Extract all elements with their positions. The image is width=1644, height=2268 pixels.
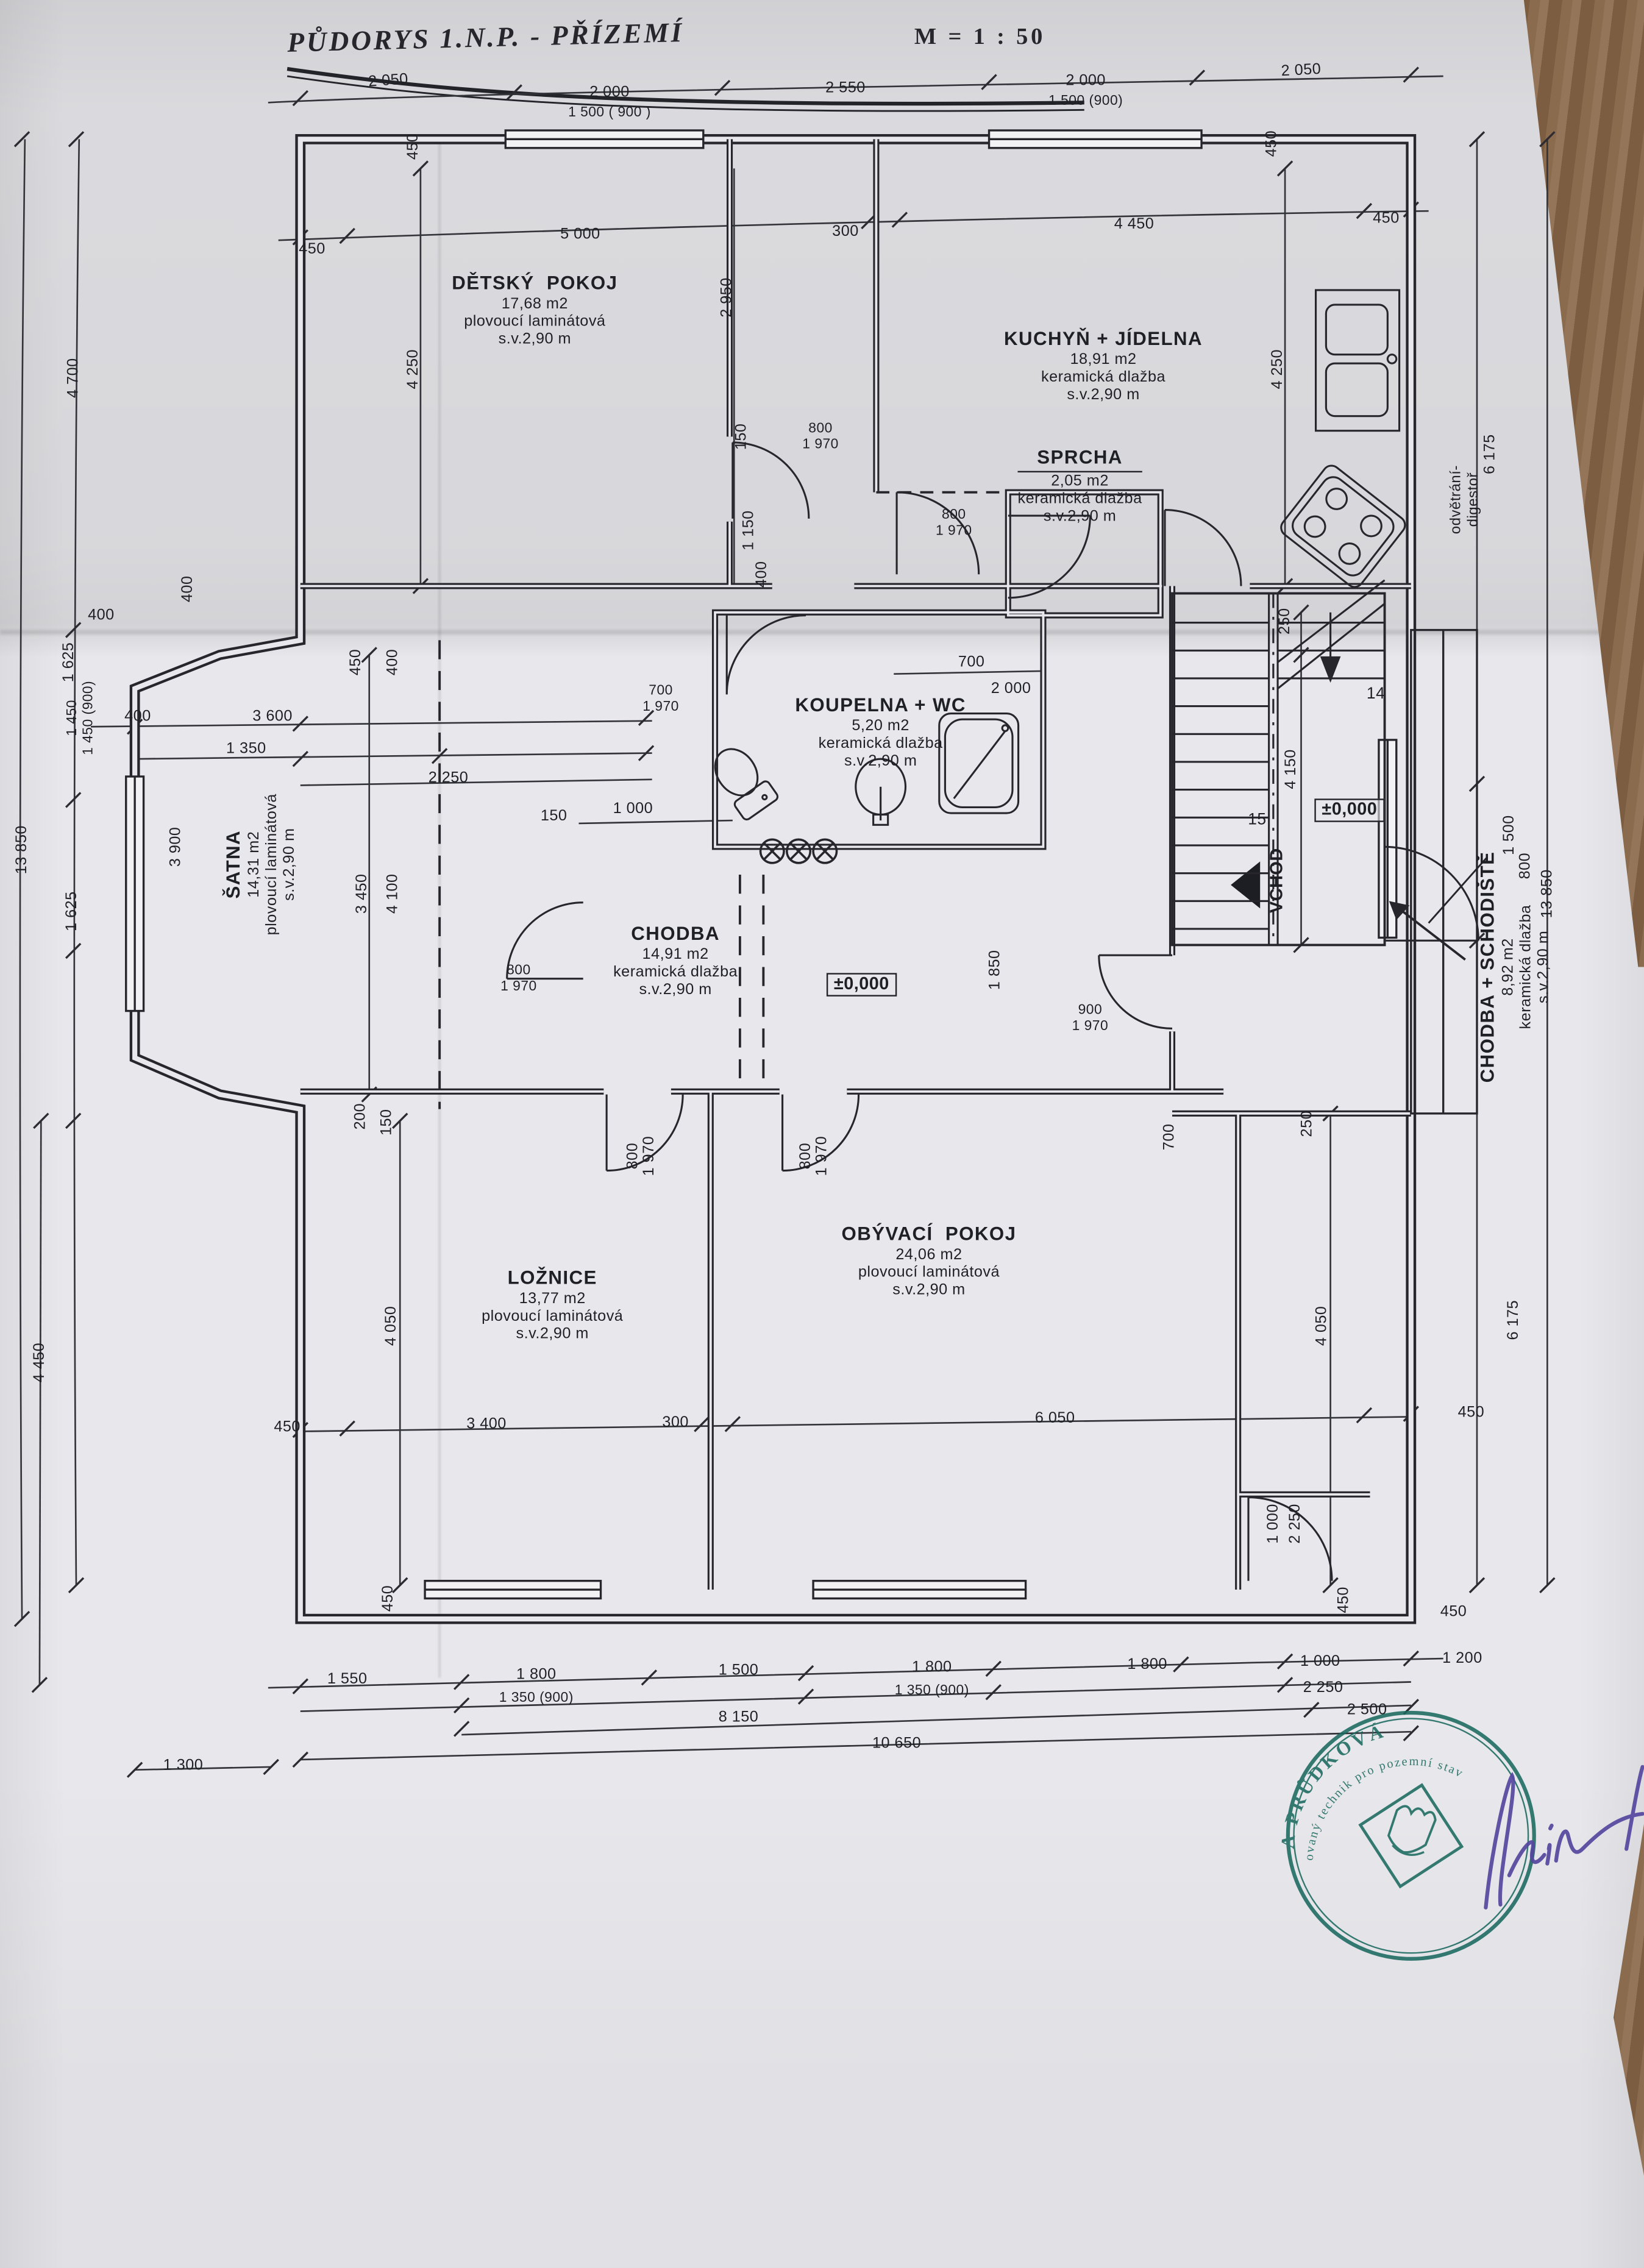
dimension-label: 700 (958, 653, 985, 671)
dimension-label: 10 650 (872, 1735, 921, 1752)
dimension-label: 450 (347, 649, 365, 676)
dimension-label: 200 (352, 1103, 369, 1130)
dimension-label: 300 (662, 1414, 689, 1432)
dimension-label: 1 500 (719, 1662, 759, 1679)
dimension-label: 250 (1276, 608, 1294, 635)
dimension-label: 2 050 (1281, 60, 1322, 80)
dimension-label: 2 000 (589, 84, 630, 101)
dimension-label: 450 (299, 240, 326, 258)
dimension-label: 700 1 970 (642, 684, 679, 717)
room-height: s.v.2,90 m (452, 330, 617, 348)
room-area: 24,06 m2 (841, 1246, 1016, 1264)
dimension-label: 6 175 (1505, 1300, 1523, 1340)
dimension-label: 1 000 (1264, 1504, 1282, 1544)
dimension-label: 4 250 (404, 349, 422, 389)
room-floor: keramická dlažba (1004, 368, 1203, 386)
entrance-landing (1411, 630, 1477, 1114)
room-area: 17,68 m2 (452, 295, 617, 313)
annotation-odv-tr-n-digesto-: odvětrání- digestoř (1448, 465, 1482, 534)
room-area: 2,05 m2 (1018, 472, 1142, 490)
dimension-label: 800 1 970 (936, 508, 972, 541)
dimension-label: 250 (1298, 1111, 1316, 1137)
dimension-label: 450 (1458, 1404, 1485, 1421)
dimension-label: 450 (1373, 210, 1400, 227)
plan-linework: A PRŮDKOVÁ ovaný technik pro pozemní sta… (0, 0, 1644, 2268)
room-area: 5,20 m2 (795, 717, 966, 734)
dimension-label: 1 850 (986, 950, 1004, 990)
dimension-label: 2 000 (991, 680, 1031, 697)
dimension-label: 6 175 (1481, 434, 1499, 474)
dimension-label: 450 (274, 1418, 301, 1436)
dimension-label: 4 100 (384, 873, 402, 914)
dimension-label: 1 970 (640, 1136, 658, 1176)
dimension-label: 2 250 (1286, 1504, 1304, 1544)
room-label-koupelna-wc: KOUPELNA + WC5,20 m2keramická dlažbas.v.… (795, 695, 966, 770)
dimension-label: 1 500 (900) (1048, 94, 1123, 110)
dimension-label: 800 1 970 (500, 964, 537, 997)
dimension-label: 3 900 (167, 827, 185, 867)
dimension-label: 800 (797, 1143, 815, 1170)
dimension-label: 150 (378, 1109, 396, 1136)
dimension-label: 2 050 (368, 70, 408, 90)
dimension-label: 400 (88, 606, 115, 624)
dimension-label: 450 (379, 1585, 397, 1612)
dimension-label: 1 500 ( 900 ) (568, 106, 651, 122)
dimension-label: 800 (624, 1143, 642, 1170)
dimension-label: 2 250 (429, 769, 469, 787)
room-name: DĚTSKÝ POKOJ (452, 273, 617, 295)
room-area: 14,91 m2 (613, 945, 738, 963)
dimension-label: 2 250 (1303, 1679, 1343, 1697)
dimension-label: 1 625 (63, 891, 80, 931)
dimension-label: 6 050 (1035, 1409, 1075, 1427)
dimension-label: 1 800 (516, 1666, 557, 1683)
signature (1486, 1767, 1642, 1908)
dimension-label: 3 450 (353, 873, 371, 914)
dimension-label: 300 (832, 222, 859, 240)
room-height: s.v.2,90 m (795, 752, 966, 770)
dimension-label: 1 000 (1300, 1652, 1340, 1670)
dimension-label: 13 850 (13, 825, 31, 874)
dimension-label: 800 (1517, 853, 1534, 880)
annotation-14: 14 (1367, 685, 1385, 703)
dimension-label: 2 550 (825, 79, 866, 97)
dimension-label: 1 300 (163, 1757, 204, 1774)
dimension-label: 400 (384, 649, 402, 676)
dimension-label: 450 (1440, 1603, 1467, 1621)
room-area: 8,92 m2 (1500, 851, 1517, 1083)
interior-walls (301, 139, 1411, 1590)
kitchen-sink (1316, 290, 1400, 431)
annotation-vchod: VCHOD (1267, 848, 1287, 913)
dimension-label: 4 700 (65, 358, 82, 398)
room-area: 13,77 m2 (482, 1290, 623, 1307)
dimension-label: 4 450 (30, 1343, 48, 1383)
dimension-label: 5 000 (560, 226, 600, 243)
photographed-floorplan: PŮDORYS 1.N.P. - PŘÍZEMÍ M = 1 : 50 (0, 0, 1644, 2268)
room-floor: plovoucí laminátová (841, 1264, 1016, 1281)
room-name: KOUPELNA + WC (795, 695, 966, 717)
room-label-chodba: CHODBA14,91 m2keramická dlažbas.v.2,90 m (613, 923, 738, 998)
dimension-label: 150 (541, 807, 568, 825)
room-floor: keramická dlažba (613, 963, 738, 981)
room-name: KUCHYŇ + JÍDELNA (1004, 329, 1203, 350)
windows (126, 130, 1397, 1599)
room-floor: plovoucí laminátová (482, 1307, 623, 1325)
dimension-label: 900 1 970 (1072, 1004, 1109, 1036)
dimension-label: 1 625 (60, 642, 77, 683)
dimension-label: 150 (733, 424, 750, 450)
dimension-label: 1 200 (1442, 1650, 1482, 1668)
room-label-d-tsk-pokoj: DĚTSKÝ POKOJ17,68 m2plovoucí laminátovás… (452, 273, 617, 348)
annotation-15: 15 (1248, 811, 1266, 830)
room-area: 18,91 m2 (1004, 350, 1203, 368)
room-height: s.v.2,90 m (482, 1325, 623, 1343)
dimension-label: 3 400 (466, 1415, 507, 1433)
dimension-label: 400 (179, 576, 196, 603)
dimension-label: 2 500 (1347, 1701, 1387, 1719)
room-floor: keramická dlažba (795, 734, 966, 752)
room-label-sprcha: SPRCHA2,05 m2keramická dlažbas.v.2,90 m (1018, 447, 1142, 525)
room-name: CHODBA + SCHODIŠTĚ (1478, 851, 1500, 1083)
dimension-label: 4 050 (1313, 1306, 1331, 1346)
room-height: s.v.2,90 m (1018, 508, 1142, 525)
dimension-label: 450 (1335, 1587, 1353, 1613)
room-label-lo-nice: LOŽNICE13,77 m2plovoucí laminátovás.v.2,… (482, 1268, 623, 1343)
dimension-label: 1 150 (740, 510, 758, 550)
annotation-±0-000: ±0,000 (827, 973, 897, 996)
dimension-label: 8 150 (719, 1708, 759, 1726)
dimension-label: 4 250 (1269, 349, 1287, 389)
dimension-label: 1 970 (813, 1136, 831, 1176)
dimension-label: 450 (404, 133, 422, 160)
room-height: s.v.2,90 m (841, 1281, 1016, 1299)
room-name: SPRCHA (1018, 447, 1142, 472)
room-name: OBÝVACÍ POKOJ (841, 1224, 1016, 1246)
room-name: ŠATNA (223, 794, 245, 935)
room-height: s.v.2,90 m (613, 981, 738, 998)
room-floor: keramická dlažba (1517, 851, 1535, 1083)
dimension-label: 1 550 (327, 1670, 368, 1688)
dimension-label: 1 450 1 450 (900) (66, 681, 98, 755)
room-label-kuchy-j-delna: KUCHYŇ + JÍDELNA18,91 m2keramická dlažba… (1004, 329, 1203, 403)
kitchen-stove (1278, 462, 1409, 590)
dimension-label: 1 800 (912, 1658, 952, 1676)
outer-walls (135, 139, 1411, 1619)
dimension-label: 400 (753, 561, 770, 588)
room-name: LOŽNICE (482, 1268, 623, 1290)
dimension-label: 4 050 (382, 1306, 400, 1346)
room-area: 14,31 m2 (245, 794, 263, 935)
room-label-ob-vac-pokoj: OBÝVACÍ POKOJ24,06 m2plovoucí laminátová… (841, 1224, 1016, 1299)
dimension-label: 2 000 (1066, 72, 1106, 90)
dimension-label: 450 (1263, 130, 1281, 157)
floorplan-sheet: PŮDORYS 1.N.P. - PŘÍZEMÍ M = 1 : 50 (0, 0, 1644, 2268)
dimension-label: 400 (124, 708, 151, 725)
dimension-label: 1 800 (1127, 1655, 1167, 1673)
dimension-label: 1 500 (1500, 815, 1518, 855)
dimension-label: 13 850 (1539, 869, 1556, 918)
dimension-label: 1 350 (900) (895, 1684, 969, 1700)
dimension-label: 4 450 (1114, 215, 1155, 233)
dimension-label: 1 000 (613, 800, 653, 817)
dimension-label: 2 950 (718, 277, 736, 318)
dimension-label: 4 150 (1282, 749, 1300, 789)
room-height: s.v.2,90 m (1004, 386, 1203, 403)
room-height: s.v.2,90 m (280, 794, 298, 935)
dimension-label: 1 350 (226, 740, 266, 758)
room-name: CHODBA (613, 923, 738, 945)
interior-wall-cores (301, 139, 1411, 1590)
dimension-label: 800 1 970 (802, 422, 839, 454)
vent-symbols (761, 839, 837, 862)
dimension-label: 1 350 (900) (499, 1691, 574, 1707)
room-floor: plovoucí laminátová (452, 313, 617, 330)
dimension-label: 700 (1161, 1124, 1178, 1151)
room-floor: plovoucí laminátová (263, 794, 280, 935)
room-label--atna: ŠATNA14,31 m2plovoucí laminátovás.v.2,90… (223, 794, 298, 935)
annotation-±0-000: ±0,000 (1314, 798, 1384, 822)
room-floor: keramická dlažba (1018, 490, 1142, 508)
dimension-label: 3 600 (252, 708, 293, 725)
